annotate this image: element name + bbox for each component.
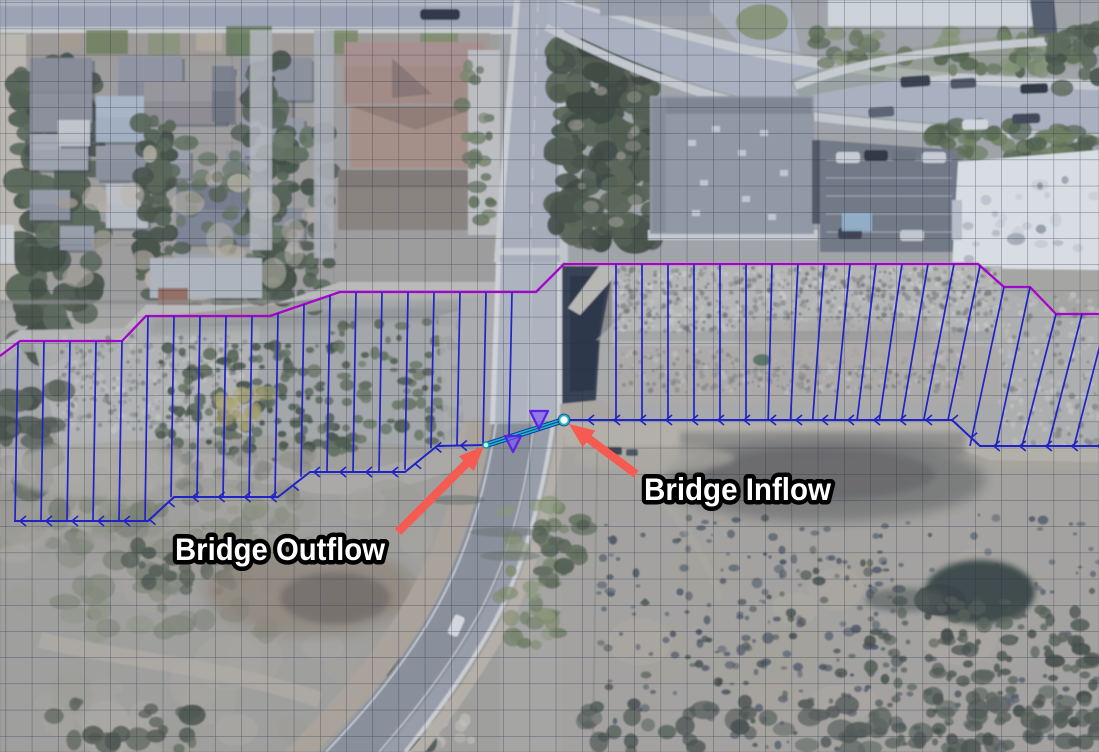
svg-text:Bridge Inflow: Bridge Inflow bbox=[644, 471, 831, 507]
svg-text:Bridge Outflow: Bridge Outflow bbox=[175, 531, 385, 567]
